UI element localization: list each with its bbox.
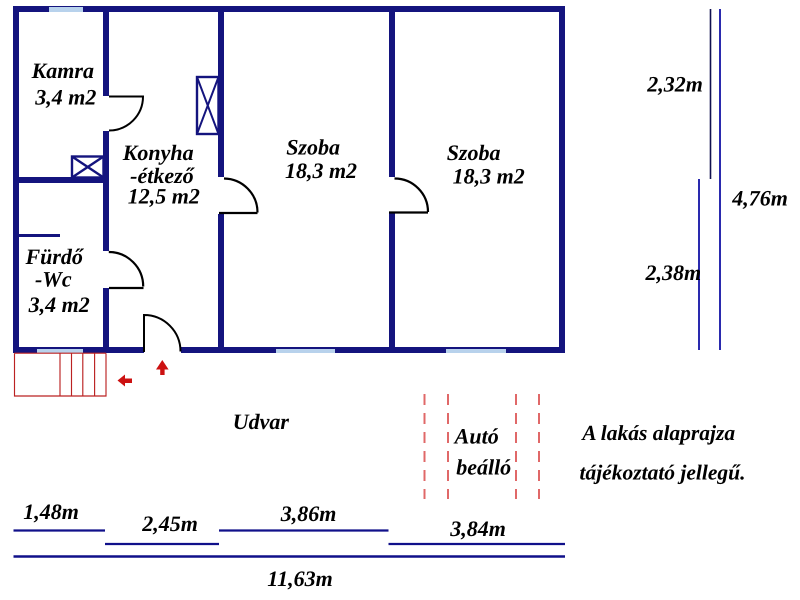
svg-text:3,86m: 3,86m <box>280 501 337 526</box>
svg-text:18,3 m2: 18,3 m2 <box>285 158 357 183</box>
svg-text:4,76m: 4,76m <box>731 186 788 211</box>
svg-text:18,3 m2: 18,3 m2 <box>453 163 525 188</box>
svg-text:2,32m: 2,32m <box>646 72 703 97</box>
svg-text:Autó: Autó <box>453 424 499 449</box>
svg-text:tájékoztató jellegű.: tájékoztató jellegű. <box>579 461 745 485</box>
svg-text:Kamra: Kamra <box>31 58 94 83</box>
svg-text:3,4 m2: 3,4 m2 <box>34 85 96 110</box>
svg-text:-Wc: -Wc <box>35 267 72 292</box>
svg-text:beálló: beálló <box>456 455 511 480</box>
svg-text:Udvar: Udvar <box>233 409 290 434</box>
svg-text:A lakás alaprajza: A lakás alaprajza <box>580 421 735 445</box>
svg-text:12,5 m2: 12,5 m2 <box>128 184 200 209</box>
svg-text:2,38m: 2,38m <box>644 260 701 285</box>
svg-text:11,63m: 11,63m <box>267 566 332 591</box>
svg-text:Szoba: Szoba <box>447 140 501 165</box>
svg-text:3,4 m2: 3,4 m2 <box>28 292 90 317</box>
svg-text:2,45m: 2,45m <box>141 511 198 536</box>
svg-text:3,84m: 3,84m <box>449 516 506 541</box>
svg-text:Szoba: Szoba <box>286 135 340 160</box>
svg-text:Fürdő: Fürdő <box>24 244 84 269</box>
svg-text:1,48m: 1,48m <box>23 499 79 524</box>
svg-text:Konyha: Konyha <box>122 140 194 165</box>
